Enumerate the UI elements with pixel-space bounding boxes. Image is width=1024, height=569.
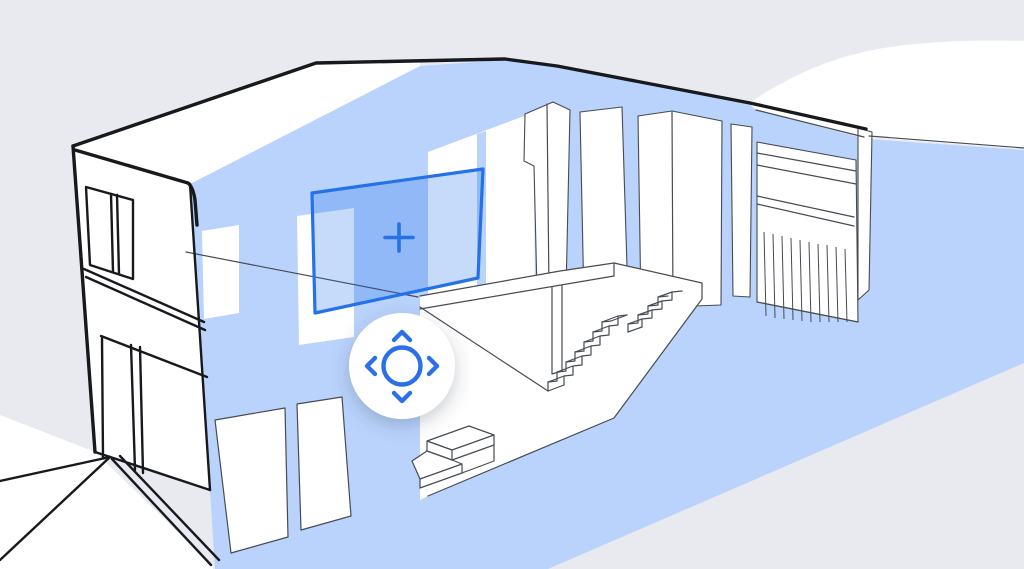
upper-window-pane <box>202 225 239 319</box>
viewport-3d-house <box>0 0 1024 569</box>
navigation-pad[interactable] <box>349 313 455 419</box>
lower-door-pane <box>297 397 351 530</box>
interior-panel-narrow <box>731 124 752 297</box>
house-illustration <box>0 0 1024 569</box>
side-window <box>86 187 133 279</box>
railing <box>757 142 858 322</box>
